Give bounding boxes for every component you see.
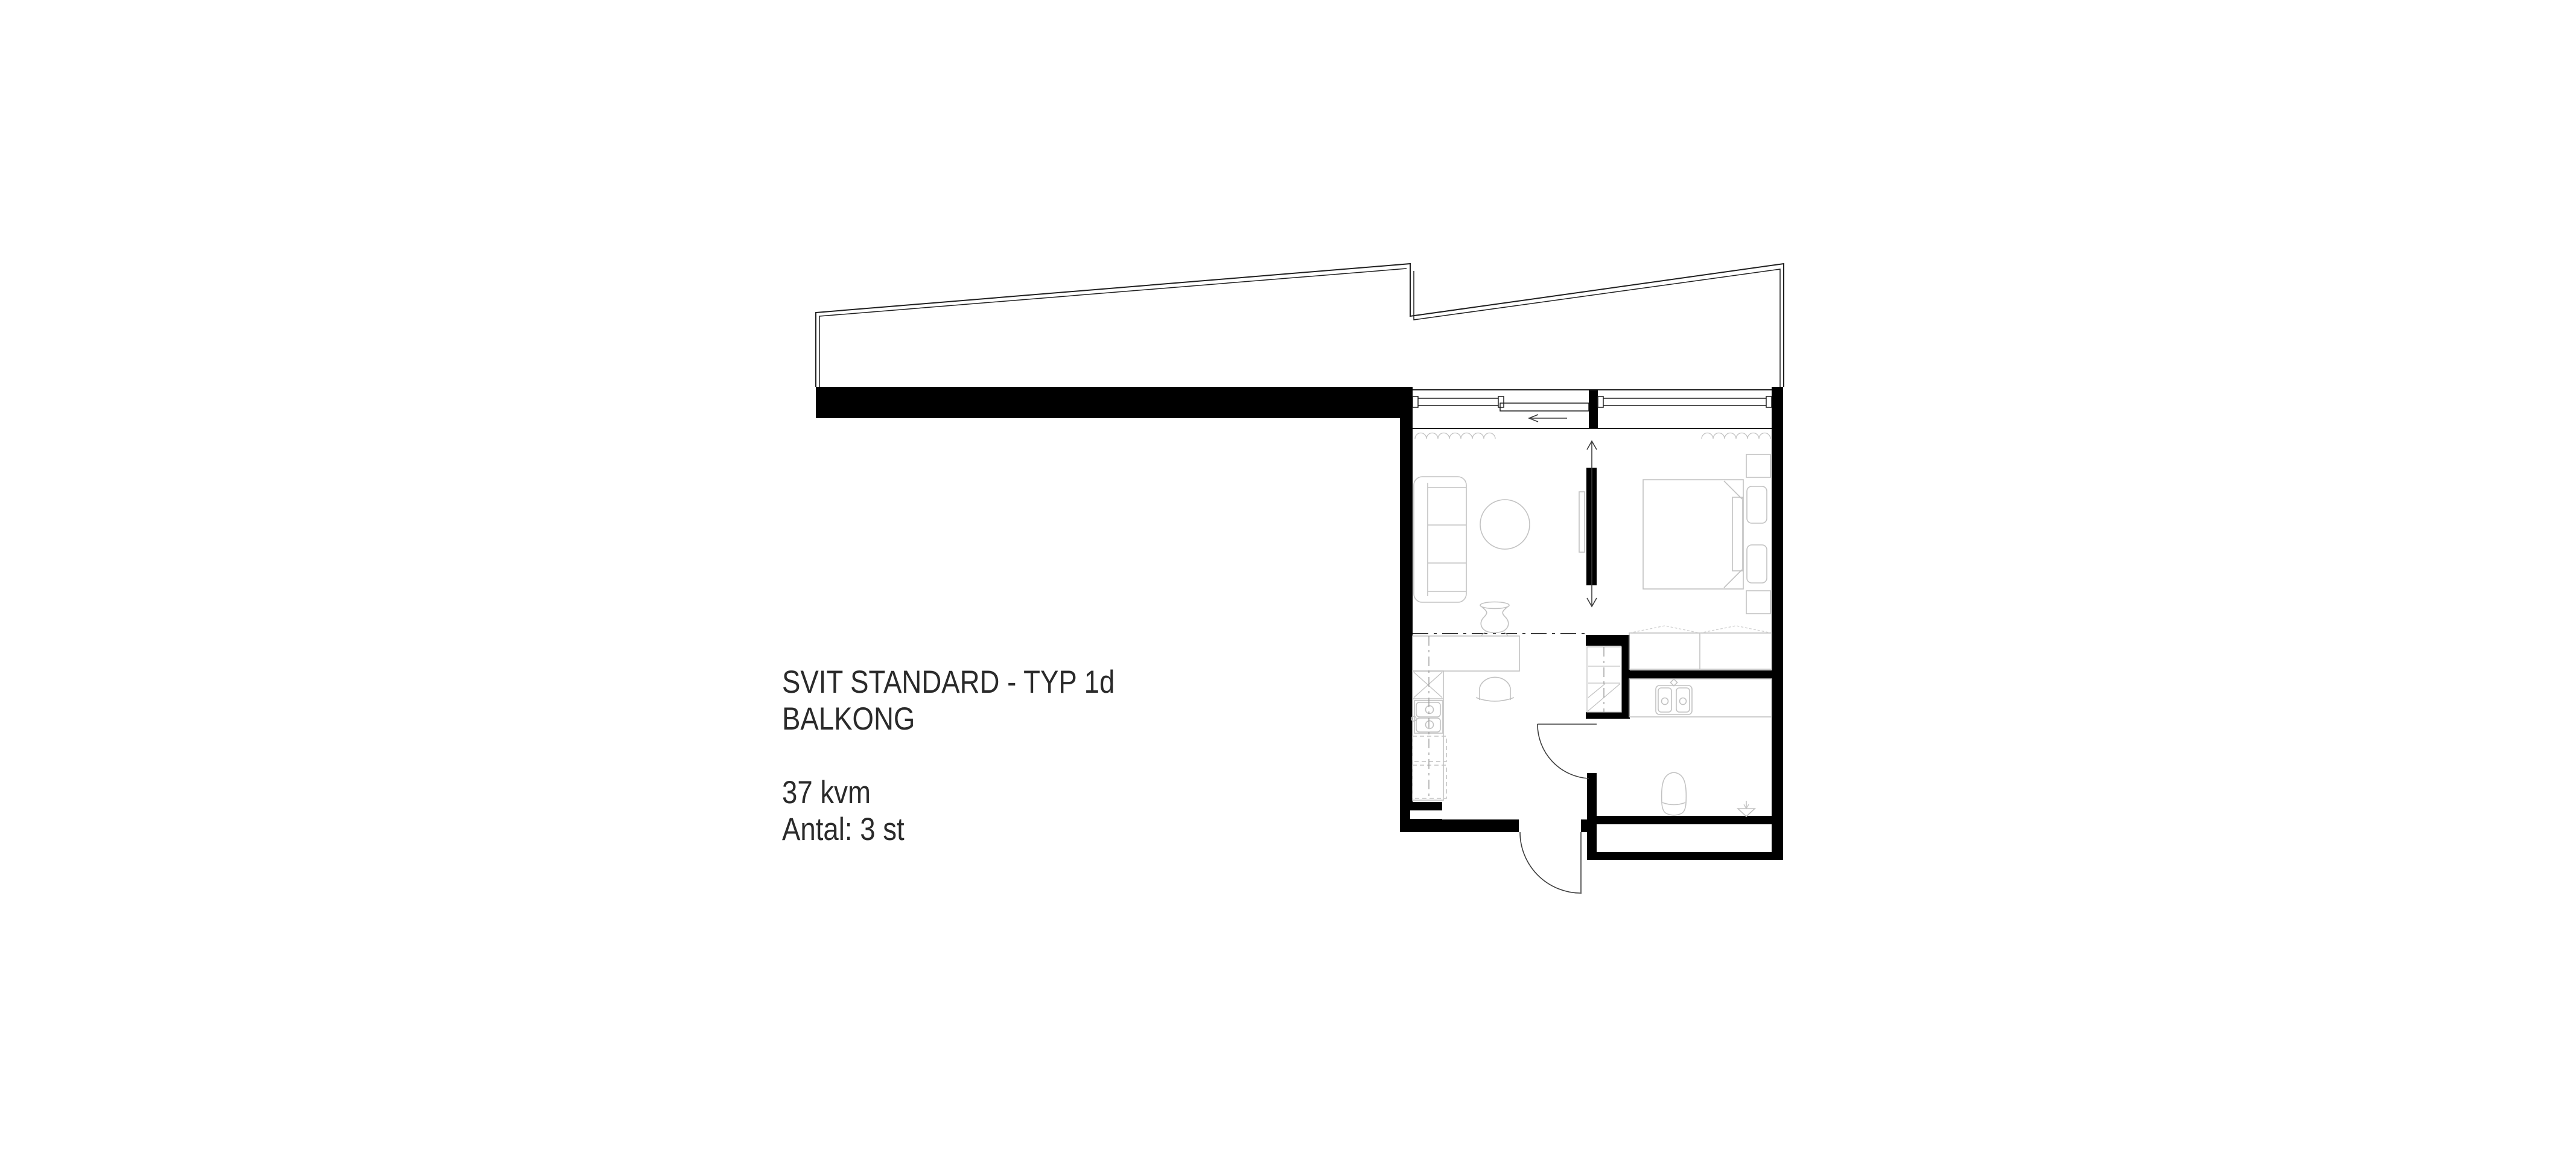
coffee-table — [1480, 500, 1530, 549]
kitchen-sink — [1411, 701, 1443, 733]
balcony-parapet — [816, 264, 1784, 387]
bathroom-sink — [1656, 679, 1692, 714]
living-room-furniture — [1414, 477, 1530, 635]
kitchen-south-wall — [1442, 819, 1519, 832]
label-spacer — [782, 737, 1115, 774]
plan-title-line1: SVIT STANDARD - TYP 1d — [782, 664, 1115, 701]
hall-closet — [1587, 647, 1621, 712]
side-table — [1480, 602, 1509, 636]
vanity-counter — [1629, 679, 1772, 717]
pillow — [1747, 486, 1767, 523]
floor-drain-icon — [1738, 801, 1755, 816]
plan-label: SVIT STANDARD - TYP 1d BALKONG 37 kvm An… — [782, 664, 1115, 848]
bathroom-door — [1538, 724, 1597, 778]
bathroom — [1629, 679, 1772, 816]
floor-plan-drawing — [0, 0, 2576, 1158]
corner-cabinet — [1413, 672, 1443, 699]
wardrobe — [1629, 626, 1772, 669]
bedroom-bath-wall — [1628, 670, 1772, 679]
dishwasher — [1413, 736, 1446, 762]
nightstand-bottom — [1746, 591, 1770, 614]
plan-area: 37 kvm — [782, 774, 1115, 811]
sliding-door-leaf — [1500, 403, 1589, 411]
plan-title-line2: BALKONG — [782, 701, 1115, 737]
sofa — [1414, 477, 1466, 602]
slide-arrow-icon — [1529, 415, 1567, 422]
pillow — [1747, 545, 1767, 583]
kitchen — [1411, 636, 1519, 800]
floor-plan-sheet: SVIT STANDARD - TYP 1d BALKONG 37 kvm An… — [0, 0, 2576, 1158]
bathroom-west-wall — [1587, 773, 1597, 860]
bedroom-furniture — [1629, 454, 1772, 669]
curtains — [1415, 433, 1770, 439]
bed — [1643, 480, 1767, 589]
window-mullion — [1589, 389, 1598, 428]
kitchen-counter-left — [1413, 671, 1443, 800]
sliding-partition — [1579, 441, 1597, 606]
plan-quantity: Antal: 3 st — [782, 811, 1115, 848]
balcony-slab-wall — [816, 387, 1413, 418]
bed-headboard — [1732, 497, 1743, 571]
curtain-right — [1702, 433, 1770, 439]
faucet-icon — [1670, 679, 1677, 686]
entry-door — [1520, 832, 1581, 894]
nightstand-top — [1746, 454, 1770, 477]
appliance — [1413, 765, 1446, 798]
curtain-left — [1415, 433, 1495, 439]
partition-pocket — [1579, 492, 1585, 552]
doors — [1520, 724, 1597, 894]
bathroom-south-wall — [1597, 816, 1772, 824]
chair — [1476, 677, 1514, 701]
west-wall — [1400, 387, 1413, 802]
east-wall — [1772, 387, 1783, 860]
south-outer-wall — [1587, 852, 1783, 860]
toilet-icon — [1662, 772, 1687, 815]
